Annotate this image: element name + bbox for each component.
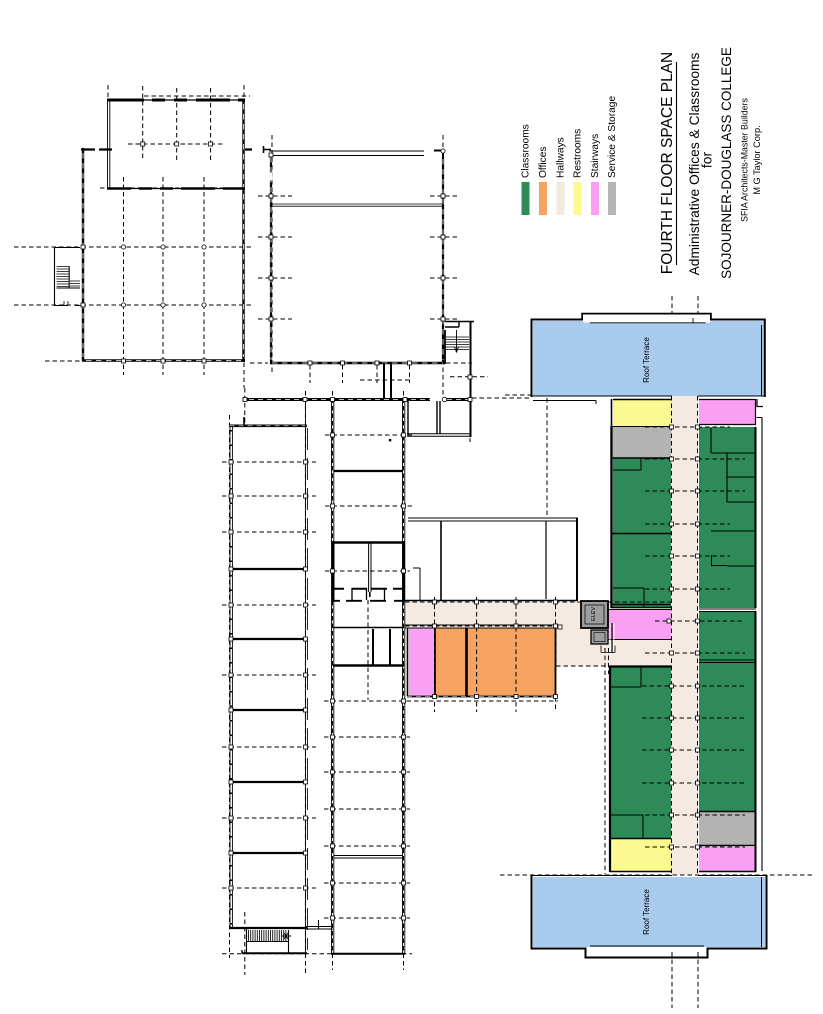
svg-text:Roof Terrace: Roof Terrace [642, 337, 651, 383]
svg-text:Hallways: Hallways [556, 137, 567, 178]
svg-text:ELEV: ELEV [591, 607, 597, 621]
svg-text:for: for [700, 152, 715, 169]
svg-text:Restrooms: Restrooms [573, 129, 584, 178]
svg-text:SOJOURNER-DOUGLASS COLLEGE: SOJOURNER-DOUGLASS COLLEGE [719, 47, 734, 279]
svg-text:Stairways: Stairways [590, 134, 601, 178]
svg-text:Classrooms: Classrooms [521, 124, 532, 178]
svg-text:FOURTH FLOOR SPACE PLAN: FOURTH FLOOR SPACE PLAN [659, 52, 676, 275]
svg-text:Offices: Offices [538, 146, 549, 178]
svg-text:SFIA Architects-Master Builder: SFIA Architects-Master Builders [740, 98, 750, 222]
svg-text:M G Taylor Corp.: M G Taylor Corp. [752, 125, 762, 194]
svg-text:Roof Terrace: Roof Terrace [642, 889, 651, 935]
svg-text:Service & Storage: Service & Storage [607, 96, 618, 178]
